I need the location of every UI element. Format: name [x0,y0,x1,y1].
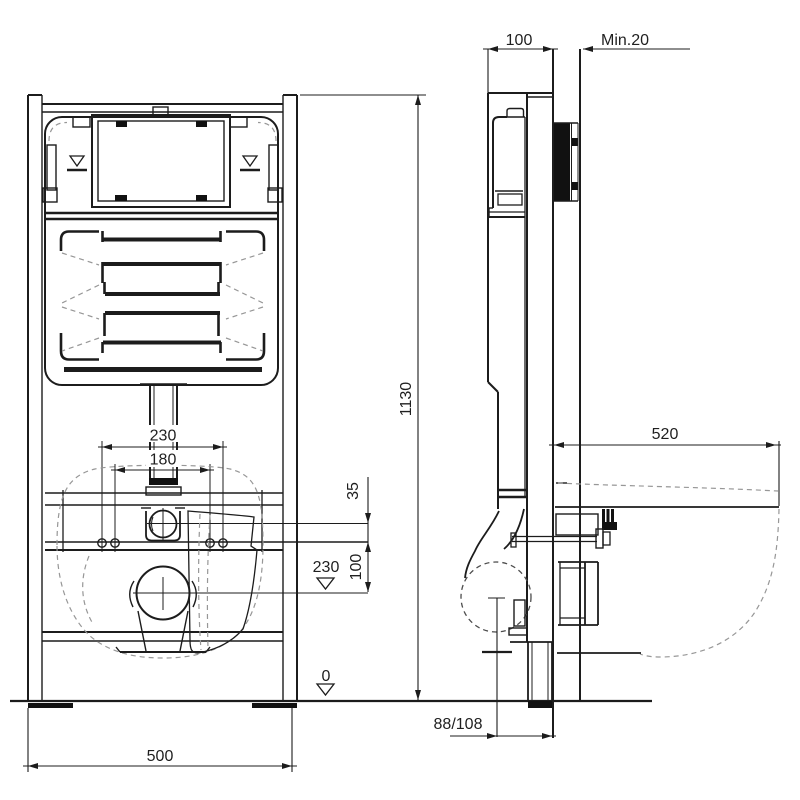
p-trap-outline [461,562,531,632]
front-view-band [45,441,368,651]
access-window-outer [92,115,230,207]
water-level-icon [67,156,87,170]
dim-supply-offset-label: 35 [345,482,362,500]
dim-frame-width-label: 500 [147,748,174,765]
wc-frame-drawing: 230 180 35 100 230 0 500 1130 [0,0,800,800]
side-view-dimensions: 100 Min.20 520 88/108 [434,32,781,739]
dim-frame-height-label: 1130 [398,382,415,417]
side-view-wall [553,49,580,738]
dim-frame-depth-label: 100 [506,32,533,49]
dim-wall-min-label: Min.20 [601,32,649,49]
dim-outlet-pipe-label: 88/108 [434,716,483,733]
top-fixing-tab [153,107,168,115]
technical-drawing-canvas: 230 180 35 100 230 0 500 1130 [0,0,800,800]
water-level-icon [240,156,260,170]
dim-bolt-outlet-label: 100 [348,554,365,581]
front-view-frame [28,95,297,708]
front-view-bowl-outline [57,465,263,658]
dim-bolt-outer-label: 230 [150,428,177,445]
side-view-trap [461,490,552,708]
right-foot-plate [252,703,297,708]
dim-bolt-inner-label: 180 [150,452,177,469]
left-foot-plate [28,703,73,708]
mounting-plate [554,123,570,201]
front-view-tank-ribs [61,231,264,370]
dim-outlet-height-label: 230 [313,559,340,576]
side-view-bowl [511,483,779,657]
outlet-connector [558,562,598,625]
dim-bowl-depth-label: 520 [652,426,679,443]
water-supply-connection [141,508,368,541]
dim-floor-level-label: 0 [322,668,331,685]
side-view-cistern [489,109,525,498]
access-window-inner [98,121,224,201]
side-view-frame [488,93,553,642]
